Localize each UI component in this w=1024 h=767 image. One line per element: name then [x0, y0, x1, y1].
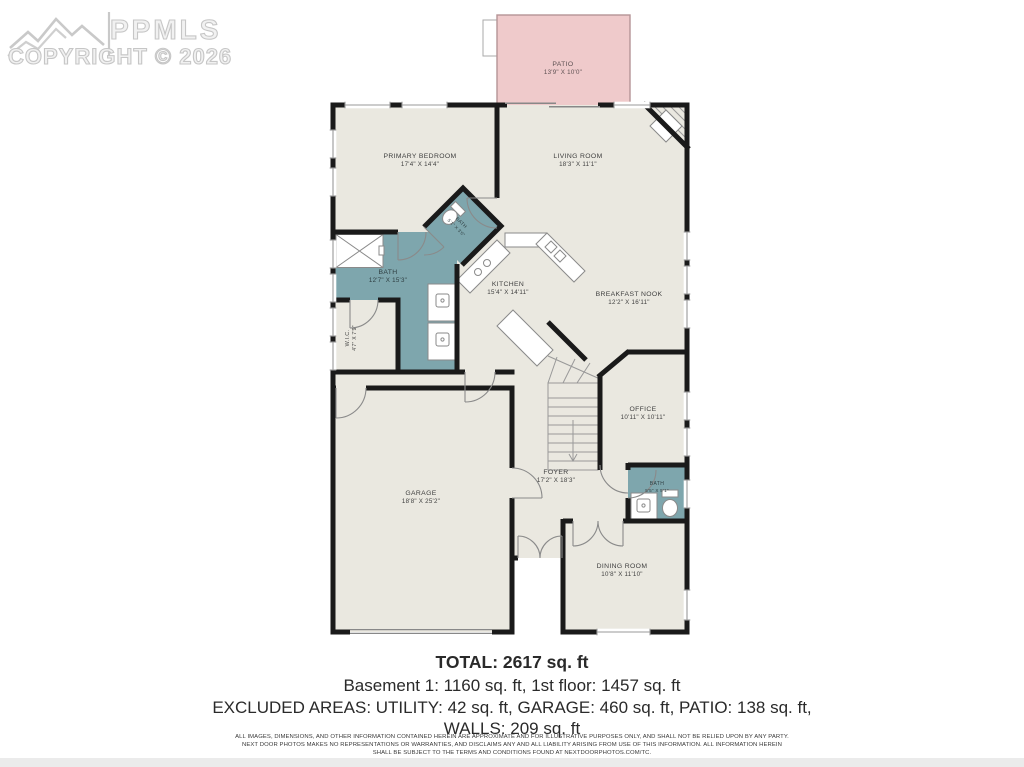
room-name: OFFICE [621, 405, 666, 414]
room-name: W.I.C. [345, 325, 352, 350]
room-dims: 18'8" X 25'2" [402, 498, 440, 506]
summary-excluded: EXCLUDED AREAS: UTILITY: 42 sq. ft, GARA… [0, 698, 1024, 718]
window-icon [684, 392, 691, 420]
floorplan-page: PATIO 13'9" X 10'0" PRIMARY BEDROOM 17'4… [0, 0, 1024, 767]
room-name: BREAKFAST NOOK [596, 290, 663, 299]
window-icon [684, 232, 691, 260]
room-name: PATIO [544, 60, 582, 69]
room-name: BATH [645, 481, 669, 488]
watermark: PPMLS COPYRIGHT © 2026 [6, 4, 266, 67]
room-dims: 18'3" X 11'1" [553, 161, 602, 169]
watermark-copyright: COPYRIGHT © 2026 [8, 44, 232, 70]
room-label-wic: W.I.C. 4'7" X 7'9" [345, 325, 359, 350]
room-label-bath-2: BATH 5'5" X 5'1" [645, 481, 669, 494]
window-icon [330, 308, 337, 336]
room-dims: 15'4" X 14'11" [487, 289, 528, 297]
room-name: KITCHEN [487, 280, 528, 289]
window-icon [684, 266, 691, 294]
window-icon [345, 102, 390, 109]
room-dims: 17'2" X 18'3" [537, 477, 575, 485]
room-name: GARAGE [402, 489, 440, 498]
window-icon [684, 428, 691, 456]
window-icon [330, 168, 337, 196]
window-icon [330, 130, 337, 158]
window-icon [597, 629, 650, 636]
disclaimer-line: SHALL BE SUBJECT TO THE TERMS AND CONDIT… [0, 750, 1024, 756]
window-icon [684, 300, 691, 328]
room-label-dining-room: DINING ROOM 10'8" X 11'10" [597, 562, 648, 580]
room-label-foyer: FOYER 17'2" X 18'3" [537, 468, 575, 486]
room-name: FOYER [537, 468, 575, 477]
room-label-garage: GARAGE 18'8" X 25'2" [402, 489, 440, 507]
room-label-primary-bedroom: PRIMARY BEDROOM 17'4" X 14'4" [384, 152, 457, 170]
window-icon [614, 102, 650, 109]
room-label-office: OFFICE 10'11" X 10'11" [621, 405, 666, 423]
disclaimer-line: ALL IMAGES, DIMENSIONS, AND OTHER INFORM… [0, 734, 1024, 740]
room-dims: 13'9" X 10'0" [544, 69, 582, 77]
room-name: DINING ROOM [597, 562, 648, 571]
watermark-brand: PPMLS [110, 14, 221, 46]
room-dims: 10'8" X 11'10" [597, 571, 648, 579]
bottom-band [0, 758, 1024, 767]
room-label-primary-bath: BATH 12'7" X 15'3" [369, 268, 407, 286]
room-dims: 17'4" X 14'4" [384, 161, 457, 169]
room-name: PRIMARY BEDROOM [384, 152, 457, 161]
room-label-patio: PATIO 13'9" X 10'0" [544, 60, 582, 78]
summary-floors: Basement 1: 1160 sq. ft, 1st floor: 1457… [0, 676, 1024, 696]
room-name: BATH [369, 268, 407, 277]
room-label-breakfast-nook: BREAKFAST NOOK 12'2" X 16'11" [596, 290, 663, 308]
room-dims: 5'5" X 5'1" [645, 488, 669, 494]
window-icon [402, 102, 447, 109]
patio-step [483, 20, 497, 56]
window-icon [684, 480, 691, 508]
bath2-fixtures [631, 490, 678, 519]
room-label-living-room: LIVING ROOM 18'3" X 11'1" [553, 152, 602, 170]
shower-icon [336, 235, 384, 268]
window-icon [330, 274, 337, 302]
room-dims: 12'2" X 16'11" [596, 299, 663, 307]
room-name: LIVING ROOM [553, 152, 602, 161]
room-label-kitchen: KITCHEN 15'4" X 14'11" [487, 280, 528, 298]
room-dims: 4'7" X 7'9" [352, 325, 359, 350]
window-icon [330, 342, 337, 370]
room-dims: 12'7" X 15'3" [369, 277, 407, 285]
window-icon [330, 240, 337, 268]
window-icon [684, 590, 691, 620]
disclaimer-line: NEXT DOOR PHOTOS MAKES NO REPRESENTATION… [0, 742, 1024, 748]
summary-total: TOTAL: 2617 sq. ft [0, 652, 1024, 673]
room-dims: 10'11" X 10'11" [621, 414, 666, 422]
